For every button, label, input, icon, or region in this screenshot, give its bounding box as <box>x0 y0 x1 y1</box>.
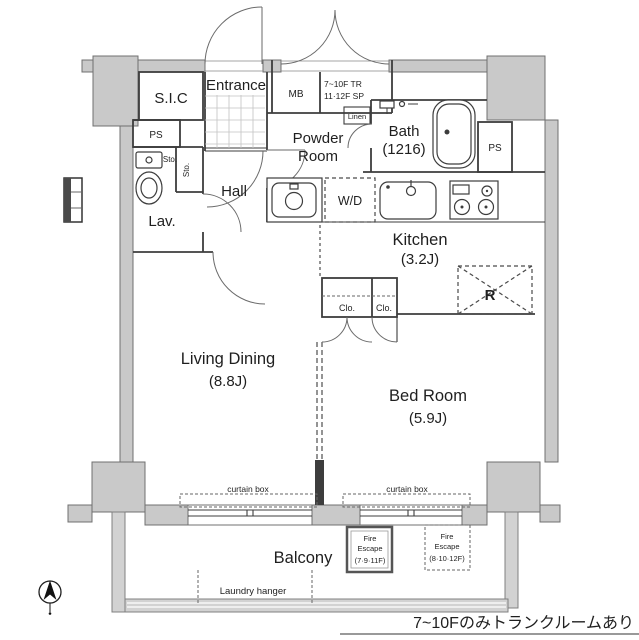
entrance-tiles <box>205 95 265 148</box>
label-living-line1: Living Dining <box>181 350 275 368</box>
label-mb: MB <box>289 89 304 100</box>
label-entrance: Entrance <box>206 77 266 94</box>
label-bath-line2: (1216) <box>382 141 425 158</box>
label-footnote: 7~10Fのみトランクルームあり <box>413 614 634 632</box>
label-hall: Hall <box>221 183 247 200</box>
vanity-sink-icon <box>267 178 322 222</box>
label-sto-upper: Sto. <box>163 155 177 164</box>
label-living-line2: (8.8J) <box>209 373 247 390</box>
label-linen: Linen <box>348 112 366 121</box>
exterior-duct <box>64 178 82 222</box>
label-trunk-line2: 11·12F SP <box>324 91 364 101</box>
label-sto-closet: Sto. <box>182 163 191 177</box>
label-washer-dryer: W/D <box>338 194 362 208</box>
label-curtain-box-bedroom: curtain box <box>386 484 428 494</box>
label-bath-line1: Bath <box>389 123 420 140</box>
floorplan-svg: S.I.C Entrance MB 7~10F TR 11·12F SP PS … <box>0 0 639 640</box>
compass-north-icon <box>39 581 61 615</box>
top-door-openings <box>205 7 389 71</box>
label-bedroom-line1: Bed Room <box>389 387 467 405</box>
label-kitchen-line1: Kitchen <box>392 231 447 249</box>
label-powder-line2: Room <box>298 148 338 165</box>
toilet-icon <box>136 152 162 204</box>
label-powder-line1: Powder <box>293 130 344 147</box>
bedroom-window <box>360 505 462 525</box>
stove-icon <box>450 181 498 219</box>
living-window <box>188 505 312 525</box>
label-fire-odd-line2: Escape <box>357 544 382 553</box>
label-ps-right: PS <box>488 143 502 154</box>
label-curtain-box-living: curtain box <box>227 484 269 494</box>
label-kitchen-line2: (3.2J) <box>401 251 439 268</box>
label-closet-right: Clo. <box>376 303 392 313</box>
label-closet-left: Clo. <box>339 303 355 313</box>
label-sic: S.I.C <box>154 90 188 107</box>
bathtub-icon <box>433 100 475 168</box>
label-refrigerator: R <box>485 287 496 304</box>
label-fire-odd-line3: (7·9·11F) <box>355 556 386 565</box>
label-bedroom-line2: (5.9J) <box>409 410 447 427</box>
label-fire-even-line3: (8·10·12F) <box>429 554 465 563</box>
label-fire-even-line2: Escape <box>434 542 459 551</box>
shower-fixture-icon <box>380 101 418 114</box>
label-fire-odd-line1: Fire <box>364 534 377 543</box>
floorplan-canvas: S.I.C Entrance MB 7~10F TR 11·12F SP PS … <box>0 0 639 640</box>
label-laundry-hanger: Laundry hanger <box>220 586 287 597</box>
label-trunk-line1: 7~10F TR <box>324 79 362 89</box>
label-fire-even-line1: Fire <box>441 532 454 541</box>
label-lavatory: Lav. <box>148 213 175 230</box>
label-balcony: Balcony <box>274 549 333 567</box>
label-ps-left: PS <box>149 130 163 141</box>
kitchen-sink-icon <box>380 180 436 219</box>
